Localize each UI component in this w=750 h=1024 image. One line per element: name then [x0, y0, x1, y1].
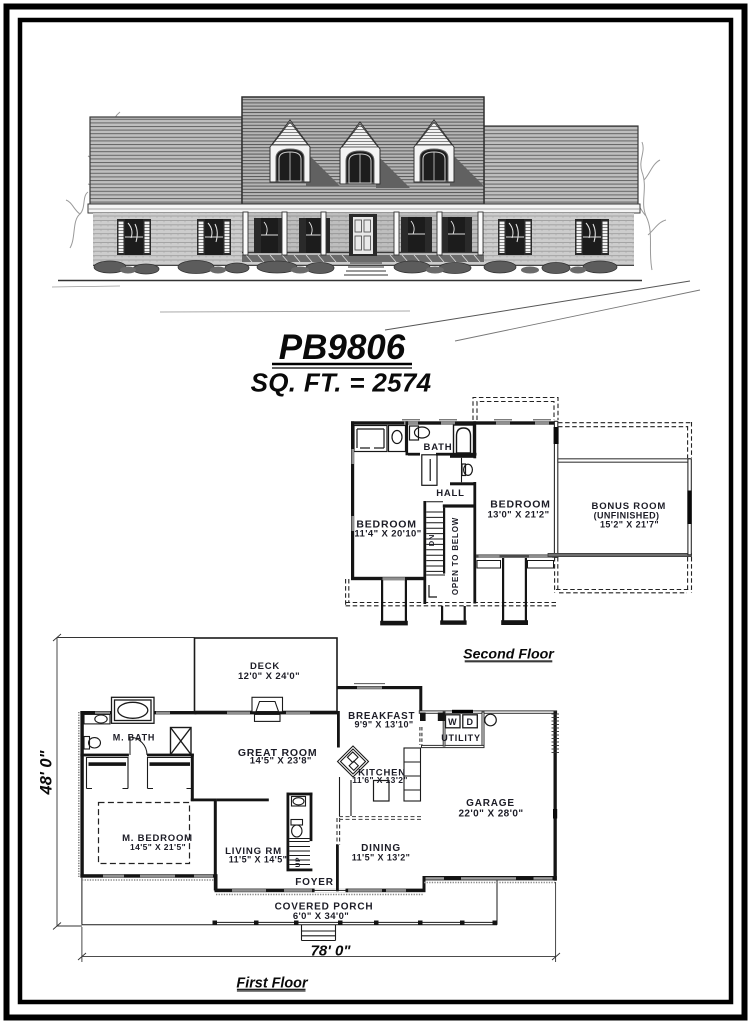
svg-text:PB9806: PB9806 [279, 328, 406, 367]
svg-text:11'4" X 20'10": 11'4" X 20'10" [354, 529, 421, 540]
svg-text:14'5" X 21'5": 14'5" X 21'5" [130, 842, 186, 852]
svg-text:11'5" X 14'5": 11'5" X 14'5" [229, 855, 288, 865]
svg-text:14'5" X 23'8": 14'5" X 23'8" [250, 756, 312, 767]
svg-text:11'5" X 13'2": 11'5" X 13'2" [352, 853, 411, 863]
svg-text:DN: DN [427, 534, 436, 546]
svg-text:BATH: BATH [424, 442, 453, 453]
svg-text:OPEN TO BELOW: OPEN TO BELOW [451, 517, 460, 595]
svg-text:6'0" X 34'0": 6'0" X 34'0" [293, 911, 349, 922]
svg-text:UP: UP [295, 857, 302, 868]
svg-text:GARAGE: GARAGE [466, 798, 515, 809]
svg-text:UTILITY: UTILITY [441, 733, 481, 743]
svg-text:HALL: HALL [436, 488, 465, 499]
svg-text:11'6" X 13'2": 11'6" X 13'2" [352, 775, 408, 785]
svg-text:13'0" X 21'2": 13'0" X 21'2" [487, 510, 549, 521]
svg-text:78' 0": 78' 0" [311, 943, 352, 960]
svg-text:FOYER: FOYER [295, 877, 333, 888]
svg-text:48' 0": 48' 0" [38, 750, 56, 795]
svg-text:15'2" X 21'7": 15'2" X 21'7" [600, 520, 659, 530]
svg-text:SQ. FT. = 2574: SQ. FT. = 2574 [251, 368, 432, 398]
svg-text:Second Floor: Second Floor [463, 647, 555, 663]
svg-text:22'0" X 28'0": 22'0" X 28'0" [458, 809, 523, 820]
svg-text:D: D [466, 717, 473, 727]
svg-text:9'9" X 13'10": 9'9" X 13'10" [354, 720, 413, 730]
svg-text:12'0" X 24'0": 12'0" X 24'0" [238, 671, 300, 682]
svg-text:W: W [448, 717, 457, 727]
